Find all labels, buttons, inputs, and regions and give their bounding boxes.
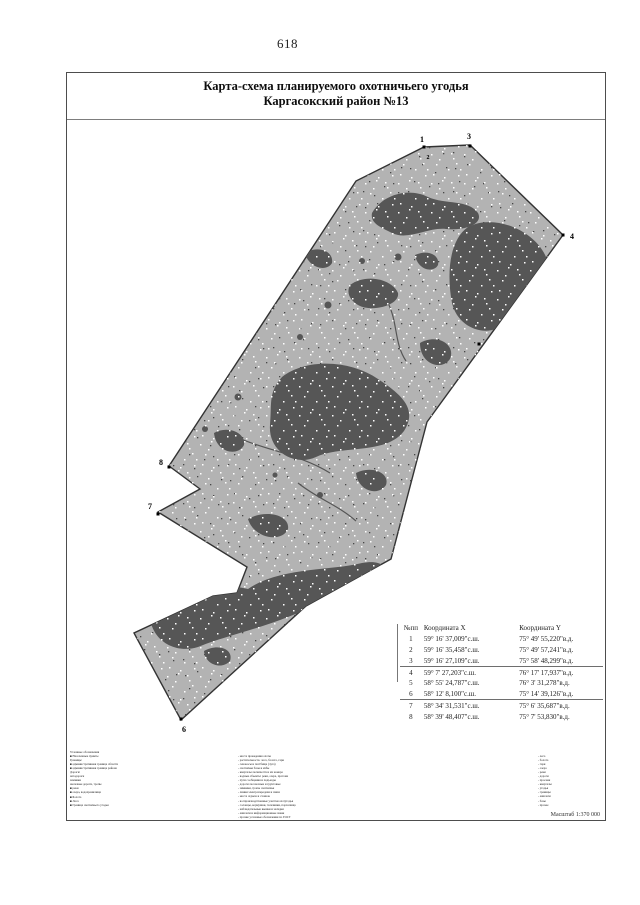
coordinate-row: 3 59° 16' 27,109"с.ш. 75° 58' 48,299"в.д… [400, 655, 603, 666]
point-3-dot [469, 145, 472, 148]
legend-item: ■ Граница охотничьего угодья [70, 803, 235, 807]
coordinate-x: 58° 39' 48,407"с.ш. [422, 711, 517, 722]
point-2-label: 2 [427, 155, 430, 161]
coordinate-x: 58° 34' 31,531"с.ш. [422, 700, 517, 711]
legend-column-3: - леса- болота- гари- озера- реки- дорог… [538, 754, 604, 807]
legend-column-2: - места проведения охоты- растительность… [238, 754, 538, 819]
coordinate-y: 75° 14' 39,126"в.д. [517, 689, 603, 700]
point-number: 2 [400, 645, 422, 656]
point-6-dot [180, 718, 183, 721]
point-7-dot [157, 513, 160, 516]
map-legend: Условные обозначения■ Населенные пунктыГ… [70, 750, 605, 814]
table-left-rule [397, 624, 398, 682]
col-header-y: Координата Y [517, 623, 603, 634]
point-8-label: 8 [159, 458, 163, 467]
coordinate-y: 75° 6' 35,687"в.д. [517, 700, 603, 711]
coordinate-x: 58° 55' 24,787"с.ш. [422, 678, 517, 689]
coordinate-row: 2 59° 16' 35,458"с.ш. 75° 49' 57,241"в.д… [400, 645, 603, 656]
legend-item: - прочие условные обозначения по ГОСТ [238, 815, 538, 819]
coordinate-x: 59° 16' 27,109"с.ш. [422, 655, 517, 666]
point-8-dot [168, 466, 171, 469]
coordinate-row: 4 59° 7' 27,203"с.ш. 76° 17' 17,937"в.д. [400, 667, 603, 678]
col-header-number: №пп [400, 623, 422, 634]
coordinate-row: 6 58° 12' 8,100"с.ш. 75° 14' 39,126"в.д. [400, 689, 603, 700]
point-3-label: 3 [467, 132, 471, 141]
coordinate-row: 7 58° 34' 31,531"с.ш. 75° 6' 35,687"в.д. [400, 700, 603, 711]
coordinate-x: 58° 12' 8,100"с.ш. [422, 689, 517, 700]
map-content-area: 1 2 3 4 6 7 8 №пп Координата X [67, 120, 605, 822]
map-title-line2: Каргасокский район №13 [67, 94, 605, 109]
map-title-line1: Карта-схема планируемого охотничьего уго… [67, 79, 605, 94]
coordinate-row: 8 58° 39' 48,407"с.ш. 75° 7' 53,830"в.д. [400, 711, 603, 722]
coordinate-x: 59° 16' 35,458"с.ш. [422, 645, 517, 656]
coordinate-x: 59° 16' 37,009"с.ш. [422, 634, 517, 645]
coordinate-y: 75° 49' 55,220"в.д. [517, 634, 603, 645]
scale-label: Масштаб 1:370 000 [551, 812, 600, 818]
coordinate-x: 59° 7' 27,203"с.ш. [422, 667, 517, 678]
point-number: 6 [400, 689, 422, 700]
map-sheet-frame: Карта-схема планируемого охотничьего уго… [66, 72, 606, 821]
document-page: 618 Карта-схема планируемого охотничьего… [0, 0, 640, 905]
point-number: 1 [400, 634, 422, 645]
point-number: 8 [400, 711, 422, 722]
coordinate-row: 1 59° 16' 37,009"с.ш. 75° 49' 55,220"в.д… [400, 634, 603, 645]
point-number: 3 [400, 655, 422, 666]
point-4-label: 4 [570, 232, 574, 241]
coordinate-y: 75° 49' 57,241"в.д. [517, 645, 603, 656]
point-1-dot [423, 146, 426, 149]
coordinate-y: 76° 17' 17,937"в.д. [517, 667, 603, 678]
coordinate-y: 75° 7' 53,830"в.д. [517, 711, 603, 722]
legend-column-1: Условные обозначения■ Населенные пунктыГ… [70, 750, 235, 807]
table-header-row: №пп Координата X Координата Y [400, 623, 603, 634]
point-6-label: 6 [182, 725, 186, 734]
col-header-x: Координата X [422, 623, 517, 634]
point-number: 4 [400, 667, 422, 678]
legend-item: - прочее [538, 803, 604, 807]
page-number: 618 [277, 36, 298, 52]
coordinate-y: 76° 3' 31,278"в.д. [517, 678, 603, 689]
point-1-label: 1 [420, 135, 424, 144]
coordinate-row: 5 58° 55' 24,787"с.ш. 76° 3' 31,278"в.д. [400, 678, 603, 689]
coordinate-y: 75° 58' 48,299"в.д. [517, 655, 603, 666]
point-5-dot [478, 343, 481, 346]
point-number: 5 [400, 678, 422, 689]
point-4-dot [562, 234, 565, 237]
map-title: Карта-схема планируемого охотничьего уго… [67, 73, 605, 120]
point-7-label: 7 [148, 502, 152, 511]
point-number: 7 [400, 700, 422, 711]
coordinates-table: №пп Координата X Координата Y 1 59° 16' … [397, 623, 603, 722]
